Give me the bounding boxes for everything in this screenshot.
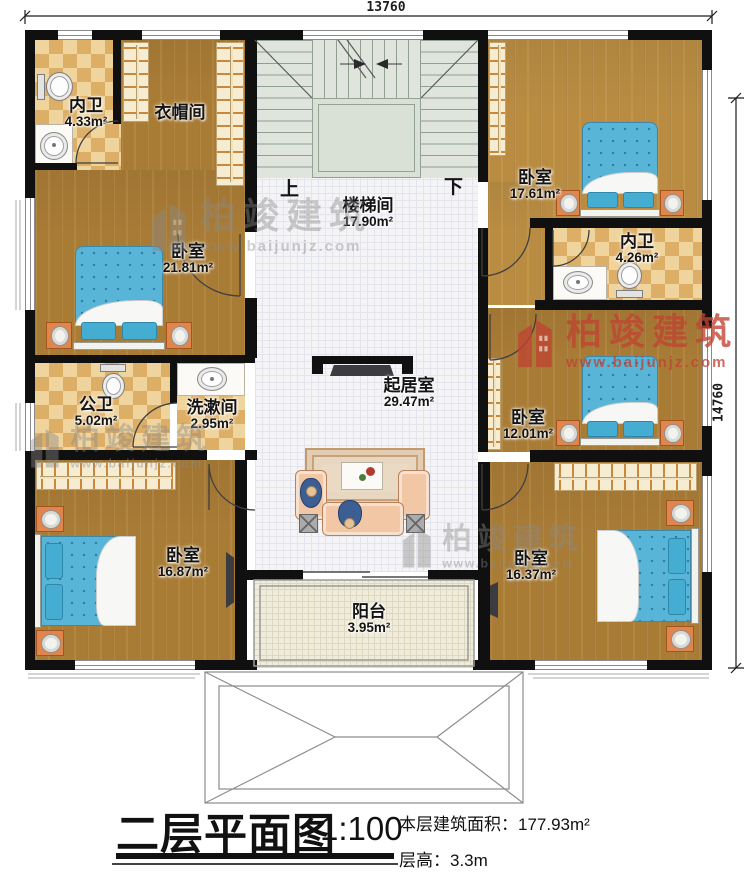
window [142, 30, 220, 40]
bed-headboard [580, 438, 660, 446]
wall [530, 450, 702, 462]
window [488, 30, 628, 40]
pillow [668, 538, 686, 574]
wall [478, 462, 490, 660]
bed-sheet [597, 530, 639, 622]
title-underline-thin [112, 863, 398, 865]
person-head [344, 518, 355, 529]
dimension-top: 13760 [358, 0, 414, 15]
window [303, 30, 423, 40]
bed-headboard [691, 528, 699, 624]
balcony-sliding-door [303, 572, 428, 577]
window [535, 660, 647, 670]
wardrobe [216, 42, 244, 186]
floor-height-note: 层高：3.3m [399, 846, 488, 871]
wardrobe [36, 462, 176, 490]
wall [170, 363, 177, 403]
floor-plan-canvas: 13760 14760 内卫 4.33m² 衣帽间 楼梯间 17.90m² 卧室… [0, 0, 750, 881]
room-label-stair-hall: 楼梯间 17.90m² [343, 197, 394, 230]
toilet-bowl [617, 262, 642, 289]
stair-landing [312, 98, 421, 178]
sink [197, 367, 227, 391]
toilet [100, 364, 126, 372]
wall [245, 298, 257, 358]
wall [35, 355, 255, 363]
pillow [668, 579, 686, 615]
wardrobe [554, 463, 697, 491]
room-label-living: 起居室 29.47m² [384, 377, 435, 410]
toilet [37, 74, 45, 100]
window [25, 198, 35, 310]
pillow [587, 192, 618, 208]
room-label-public-bath: 公卫 5.02m² [75, 396, 118, 429]
pillow [122, 322, 157, 340]
nightstand [666, 626, 694, 652]
wall [35, 450, 207, 460]
wall [245, 450, 257, 460]
window [58, 30, 92, 40]
nightstand [36, 630, 64, 656]
tv [490, 582, 498, 618]
room-label-bedroom-mr: 卧室 12.01m² [503, 409, 553, 442]
stair-up-label: 上 [280, 174, 299, 201]
window [702, 476, 712, 572]
room-label-cloakroom: 衣帽间 [155, 104, 206, 122]
nightstand [660, 190, 684, 216]
nightstand [660, 420, 684, 446]
room-label-bedroom-bl: 卧室 16.87m² [158, 547, 208, 580]
pillow [623, 421, 654, 437]
pillow [587, 421, 618, 437]
drawing-scale: 1:100 [320, 810, 403, 848]
wall [245, 40, 257, 232]
wall [245, 570, 303, 580]
roof-outline [205, 672, 523, 803]
wall [535, 300, 702, 310]
window [75, 660, 195, 670]
pillow [623, 192, 654, 208]
toilet [616, 290, 643, 298]
wall [545, 228, 553, 303]
bed-sheet [96, 536, 136, 626]
nightstand [46, 322, 72, 349]
window [25, 403, 35, 451]
pillow [45, 543, 63, 579]
wall [235, 460, 247, 660]
room-label-bedroom-tr: 卧室 17.61m² [510, 169, 560, 202]
sink [563, 271, 593, 294]
sofa [322, 502, 404, 536]
plant-decor [359, 474, 366, 481]
floor-area-note: 本层建筑面积：177.93m² [399, 810, 590, 835]
dimension-right: 14760 [712, 375, 727, 431]
room-label-bath-tl: 内卫 4.33m² [65, 97, 108, 130]
wall [478, 40, 488, 182]
nightstand [666, 500, 694, 526]
room-label-bedroom-ml: 卧室 21.81m² [163, 243, 213, 276]
tv-wall-stub [402, 356, 413, 374]
tv [226, 552, 234, 608]
wall [35, 163, 77, 170]
stair-flight-right [421, 40, 478, 178]
wardrobe [489, 42, 506, 156]
tv [330, 365, 394, 376]
bed-headboard [580, 209, 660, 217]
side-table [406, 514, 425, 533]
person-head [306, 486, 317, 497]
tv-wall [312, 356, 413, 364]
room-label-washroom: 洗漱间 2.95m² [187, 399, 238, 432]
side-table [299, 514, 318, 533]
bed-headboard [73, 342, 165, 350]
stair-down-label: 下 [444, 172, 463, 199]
flower-decor [366, 467, 375, 476]
nightstand [36, 506, 64, 532]
wardrobe [123, 42, 149, 122]
tv-wall-stub [312, 356, 323, 374]
room-label-balcony: 阳台 3.95m² [348, 603, 391, 636]
wall [428, 570, 488, 580]
title-underline [116, 853, 394, 859]
room-label-bath-r: 内卫 4.26m² [616, 233, 659, 266]
room-label-bedroom-br: 卧室 16.37m² [506, 550, 556, 583]
window [702, 70, 712, 200]
pillow [81, 322, 116, 340]
stair-flight-top [312, 40, 421, 98]
pillow [45, 584, 63, 620]
wall [530, 218, 702, 228]
wall [478, 228, 488, 452]
wall [25, 30, 35, 670]
nightstand [166, 322, 192, 349]
sink [40, 132, 68, 160]
window [702, 328, 712, 426]
stair-flight-left [255, 40, 312, 178]
nightstand [556, 420, 580, 446]
wall [113, 40, 121, 124]
